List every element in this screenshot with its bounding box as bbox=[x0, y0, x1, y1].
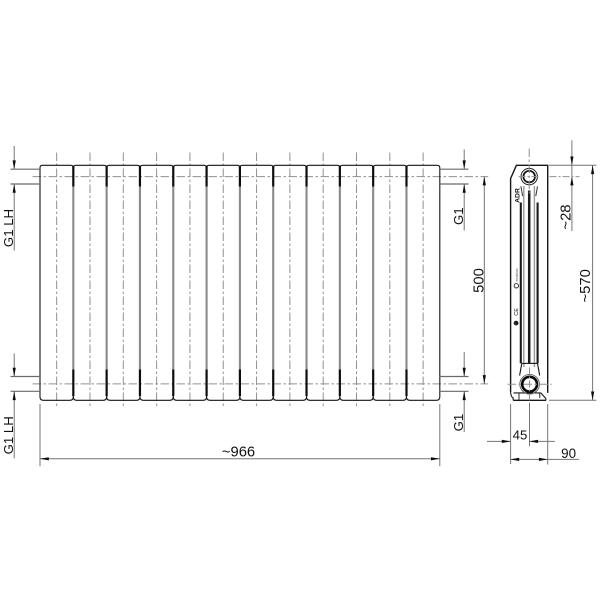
svg-text:~966: ~966 bbox=[222, 445, 255, 461]
svg-text:~570: ~570 bbox=[578, 269, 594, 302]
svg-text:evolution: evolution bbox=[515, 268, 519, 281]
svg-text:~28: ~28 bbox=[558, 204, 574, 229]
svg-text:45: 45 bbox=[513, 427, 528, 442]
svg-text:G1: G1 bbox=[451, 207, 466, 225]
svg-text:500: 500 bbox=[471, 268, 487, 293]
svg-text:G1 LH: G1 LH bbox=[1, 416, 16, 454]
svg-text:G1: G1 bbox=[451, 414, 466, 432]
svg-text:ADR: ADR bbox=[514, 188, 521, 203]
svg-text:90: 90 bbox=[561, 446, 576, 461]
svg-text:CE: CE bbox=[514, 308, 520, 316]
svg-text:G1 LH: G1 LH bbox=[1, 209, 16, 247]
